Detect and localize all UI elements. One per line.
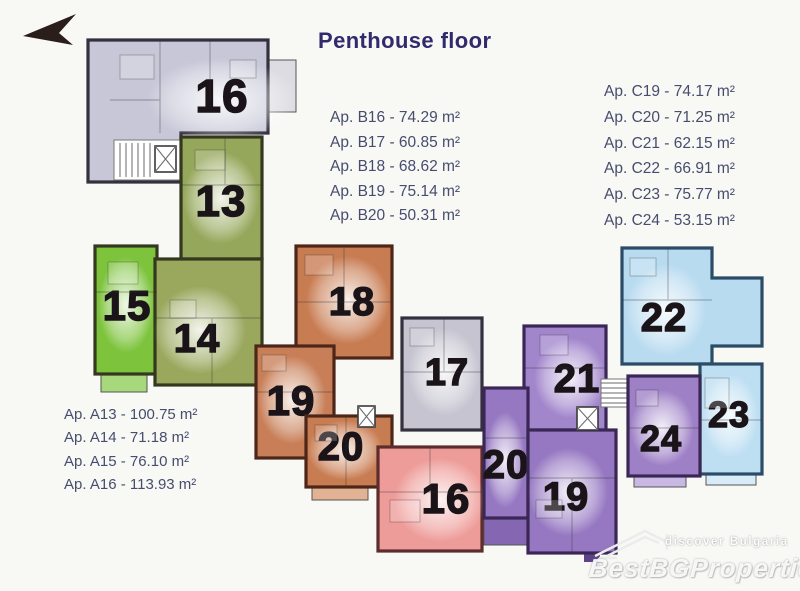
apartment-area-item: Ap. C19 - 74.17 m² xyxy=(604,79,735,105)
unit-number: 14 xyxy=(174,317,221,361)
elevator-icon xyxy=(577,407,598,430)
unit-A14: 14 xyxy=(154,259,262,385)
watermark-brand: BestBGProperties xyxy=(588,553,800,584)
unit-number: 22 xyxy=(641,296,688,340)
apartment-list-c: Ap. C19 - 74.17 m² Ap. C20 - 71.25 m² Ap… xyxy=(604,79,735,234)
unit-number: 21 xyxy=(554,357,601,401)
apartment-area-item: Ap. A15 - 76.10 m² xyxy=(64,450,197,473)
apartment-area-item: Ap. C21 - 62.15 m² xyxy=(604,131,735,157)
apartment-list-b: Ap. B16 - 74.29 m² Ap. B17 - 60.85 m² Ap… xyxy=(330,106,460,229)
apartment-area-item: Ap. B16 - 74.29 m² xyxy=(330,106,460,131)
apartment-area-item: Ap. C24 - 53.15 m² xyxy=(604,208,735,234)
apartment-area-item: Ap. B19 - 75.14 m² xyxy=(330,180,460,205)
unit-number: 20 xyxy=(483,443,530,487)
elevator-icon-2 xyxy=(358,406,375,427)
unit-number: 13 xyxy=(196,177,247,226)
apartment-area-item: Ap. A13 - 100.75 m² xyxy=(64,403,197,426)
apartment-area-item: Ap. A14 - 71.18 m² xyxy=(64,426,197,449)
apartment-area-item: Ap. C20 - 71.25 m² xyxy=(604,105,735,131)
apartment-area-item: Ap. C23 - 75.77 m² xyxy=(604,182,735,208)
apartment-area-item: Ap. C22 - 66.91 m² xyxy=(604,156,735,182)
floorplan-page: 16 13 15 14 xyxy=(0,0,800,591)
unit-number: 17 xyxy=(425,352,469,394)
watermark-tagline: discover Bulgaria xyxy=(665,536,789,548)
direction-arrow-icon xyxy=(23,14,76,45)
stairwell-1 xyxy=(114,140,180,180)
apartment-area-item: Ap. A16 - 113.93 m² xyxy=(64,473,197,496)
unit-number: 24 xyxy=(640,418,682,459)
apartment-list-a: Ap. A13 - 100.75 m² Ap. A14 - 71.18 m² A… xyxy=(64,403,197,497)
terrace-C20 xyxy=(484,518,528,545)
unit-number: 15 xyxy=(103,282,152,329)
unit-B16: 16 xyxy=(378,447,486,551)
watermark: discover Bulgaria BestBGProperties xyxy=(583,520,800,591)
apartment-area-item: Ap. B20 - 50.31 m² xyxy=(330,204,460,229)
balcony-C24 xyxy=(634,476,686,487)
unit-C20: 20 xyxy=(483,388,530,545)
balcony-C23 xyxy=(706,474,756,485)
balcony-A15 xyxy=(101,374,147,392)
apartment-area-item: Ap. B17 - 60.85 m² xyxy=(330,131,460,156)
apartment-area-item: Ap. B18 - 68.62 m² xyxy=(330,155,460,180)
balcony-B20 xyxy=(312,487,368,500)
unit-number: 16 xyxy=(422,475,471,522)
page-title: Penthouse floor xyxy=(318,28,491,54)
elevator-icon xyxy=(155,146,176,172)
